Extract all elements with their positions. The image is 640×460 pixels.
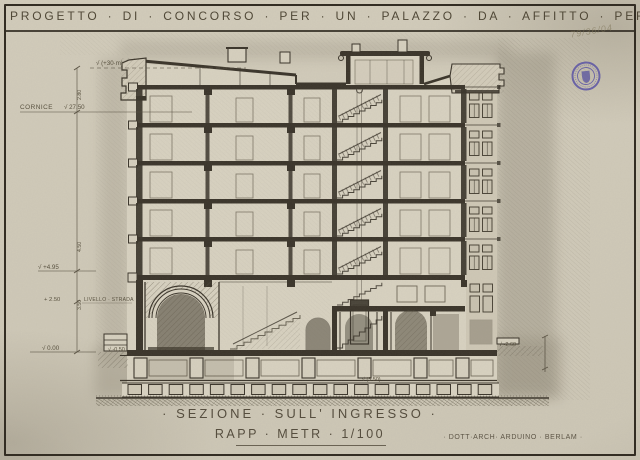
section-drawing: √ -2.60 (0, 0, 640, 460)
scale-underline (236, 445, 386, 446)
caption-scale: RAPP · METR · 1/100 (170, 427, 430, 441)
title-rule (6, 30, 634, 32)
sheet-title: PROGETTO · DI · CONCORSO · PER · UN · PA… (10, 9, 630, 23)
caption-architect-credit: · DOTT·ARCH· ARDUINO · BERLAM · (443, 434, 583, 441)
paper-grain (0, 0, 640, 460)
scanned-drawing-sheet: √ -2.60 (0, 0, 640, 460)
caption-section-title: · SEZIONE · SULL' INGRESSO · (120, 406, 480, 421)
